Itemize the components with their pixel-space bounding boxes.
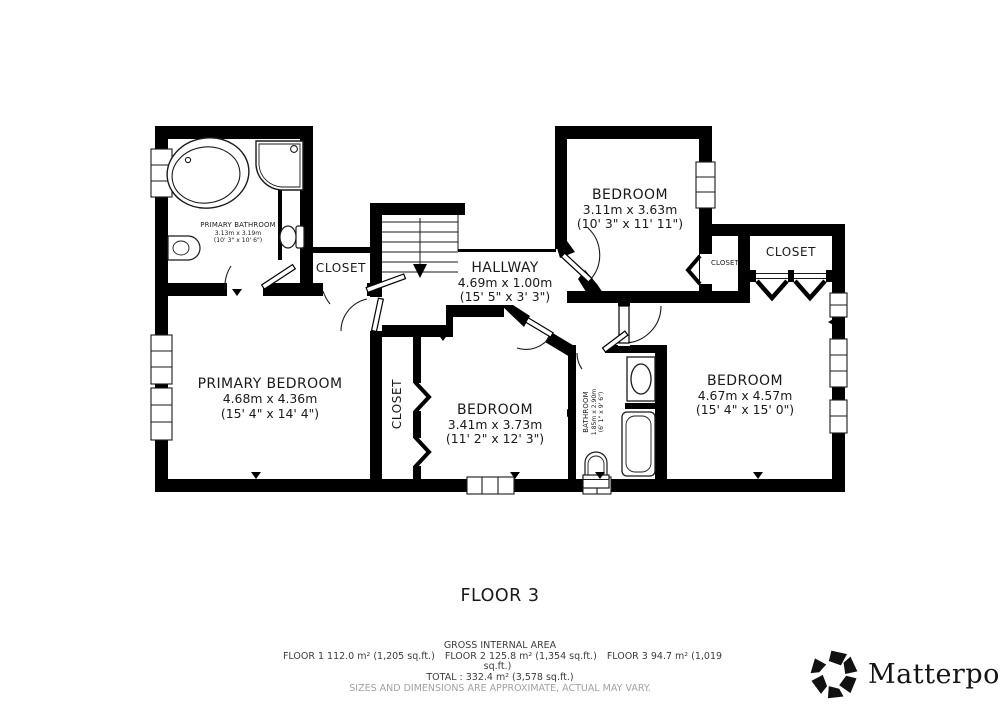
window [467, 477, 514, 494]
room-dim-imperial: (10' 3" x 11' 11") [577, 216, 683, 231]
staircase [382, 215, 458, 272]
room-dim-imperial: (15' 5" x 3' 3") [460, 289, 550, 304]
matterport-logo: Matterport® [808, 648, 1000, 700]
room-name: BEDROOM [707, 373, 783, 389]
window [696, 162, 715, 208]
room-label-bedroom-right: BEDROOM 4.67m x 4.57m (15' 4" x 15' 0") [696, 373, 794, 417]
matterport-wordmark: Matterport® [868, 659, 1000, 690]
window [830, 339, 847, 387]
closet-label: CLOSET [766, 245, 816, 259]
room-label-bedroom-top: BEDROOM 3.11m x 3.63m (10' 3" x 11' 11") [577, 187, 683, 231]
room-label-primary-bedroom: PRIMARY BEDROOM 4.68m x 4.36m (15' 4" x … [198, 376, 343, 421]
vanity-sink [168, 236, 200, 260]
room-dim-imperial: (15' 4" x 15' 0") [696, 402, 794, 417]
floor1-area: FLOOR 1 112.0 m² (1,205 sq.ft.) [278, 651, 440, 662]
bathtub-oval [163, 133, 254, 214]
room-dim-imperial: (6' 1" x 9' 6") [598, 392, 605, 433]
room-dim-metric: 4.68m x 4.36m [223, 391, 318, 406]
floor-plan: PRIMARY BATHROOM 3.13m x 3.19m (10' 3" x… [0, 0, 1000, 707]
room-dim-metric: 3.13m x 3.19m [215, 230, 262, 237]
door-bedroom-top [561, 228, 599, 282]
room-label-hallway: HALLWAY 4.69m x 1.00m (15' 5" x 3' 3") [458, 260, 553, 304]
room-name: BEDROOM [457, 402, 533, 418]
room-label-closet-primary: CLOSET [390, 379, 404, 429]
room-name: BATHROOM [582, 391, 590, 432]
fixtures [163, 133, 655, 488]
room-name: BEDROOM [592, 187, 668, 203]
closet-label: CLOSET [390, 379, 404, 429]
bathtub-2 [622, 412, 655, 476]
room-label-closet-a: CLOSET [316, 261, 366, 275]
room-label-bedroom-middle: BEDROOM 3.41m x 3.73m (11' 2" x 12' 3") [446, 402, 544, 446]
window [151, 335, 172, 384]
room-dim-imperial: (11' 2" x 12' 3") [446, 431, 544, 446]
room-dim-imperial: (10' 3" x 10' 6") [214, 237, 262, 244]
toilet-2 [627, 357, 655, 401]
bifold-door-small-closet [688, 256, 700, 284]
stairs-down-arrow [413, 264, 427, 278]
room-name: PRIMARY BEDROOM [198, 376, 343, 392]
floor-plan-page: PRIMARY BATHROOM 3.13m x 3.19m (10' 3" x… [0, 0, 1000, 707]
door-primary-bedroom [341, 298, 383, 331]
toilet [280, 226, 304, 248]
room-label-closet-small: CLOSET [711, 259, 740, 267]
room-name: PRIMARY BATHROOM [200, 221, 275, 229]
matterport-logo-icon [808, 648, 860, 700]
window [830, 293, 847, 317]
room-label-primary-bathroom: PRIMARY BATHROOM 3.13m x 3.19m (10' 3" x… [200, 221, 275, 244]
room-dim-metric: 3.41m x 3.73m [448, 417, 543, 432]
room-dim-metric: 4.67m x 4.57m [698, 388, 793, 403]
floor-label: FLOOR 3 [460, 586, 539, 606]
room-name: HALLWAY [471, 260, 538, 276]
window [830, 400, 847, 433]
room-dim-imperial: (15' 4" x 14' 4") [221, 406, 319, 421]
bifold-doors-big-closet [757, 281, 825, 298]
closet-label: CLOSET [316, 261, 366, 275]
floor2-area: FLOOR 2 125.8 m² (1,354 sq.ft.) [440, 651, 602, 662]
room-dim-metric: 1.85m x 2.90m [591, 389, 598, 436]
closet-label: CLOSET [711, 259, 740, 267]
corner-shower [256, 141, 303, 190]
room-dim-metric: 4.69m x 1.00m [458, 275, 553, 290]
pedestal-sink [583, 452, 609, 488]
room-dim-metric: 3.11m x 3.63m [583, 202, 678, 217]
window [151, 388, 172, 440]
room-label-bathroom: BATHROOM 1.85m x 2.90m (6' 1" x 9' 6") [582, 389, 605, 436]
floor-areas: FLOOR 1 112.0 m² (1,205 sq.ft.)FLOOR 2 1… [265, 652, 735, 673]
room-label-closet-top-right: CLOSET [766, 245, 816, 259]
